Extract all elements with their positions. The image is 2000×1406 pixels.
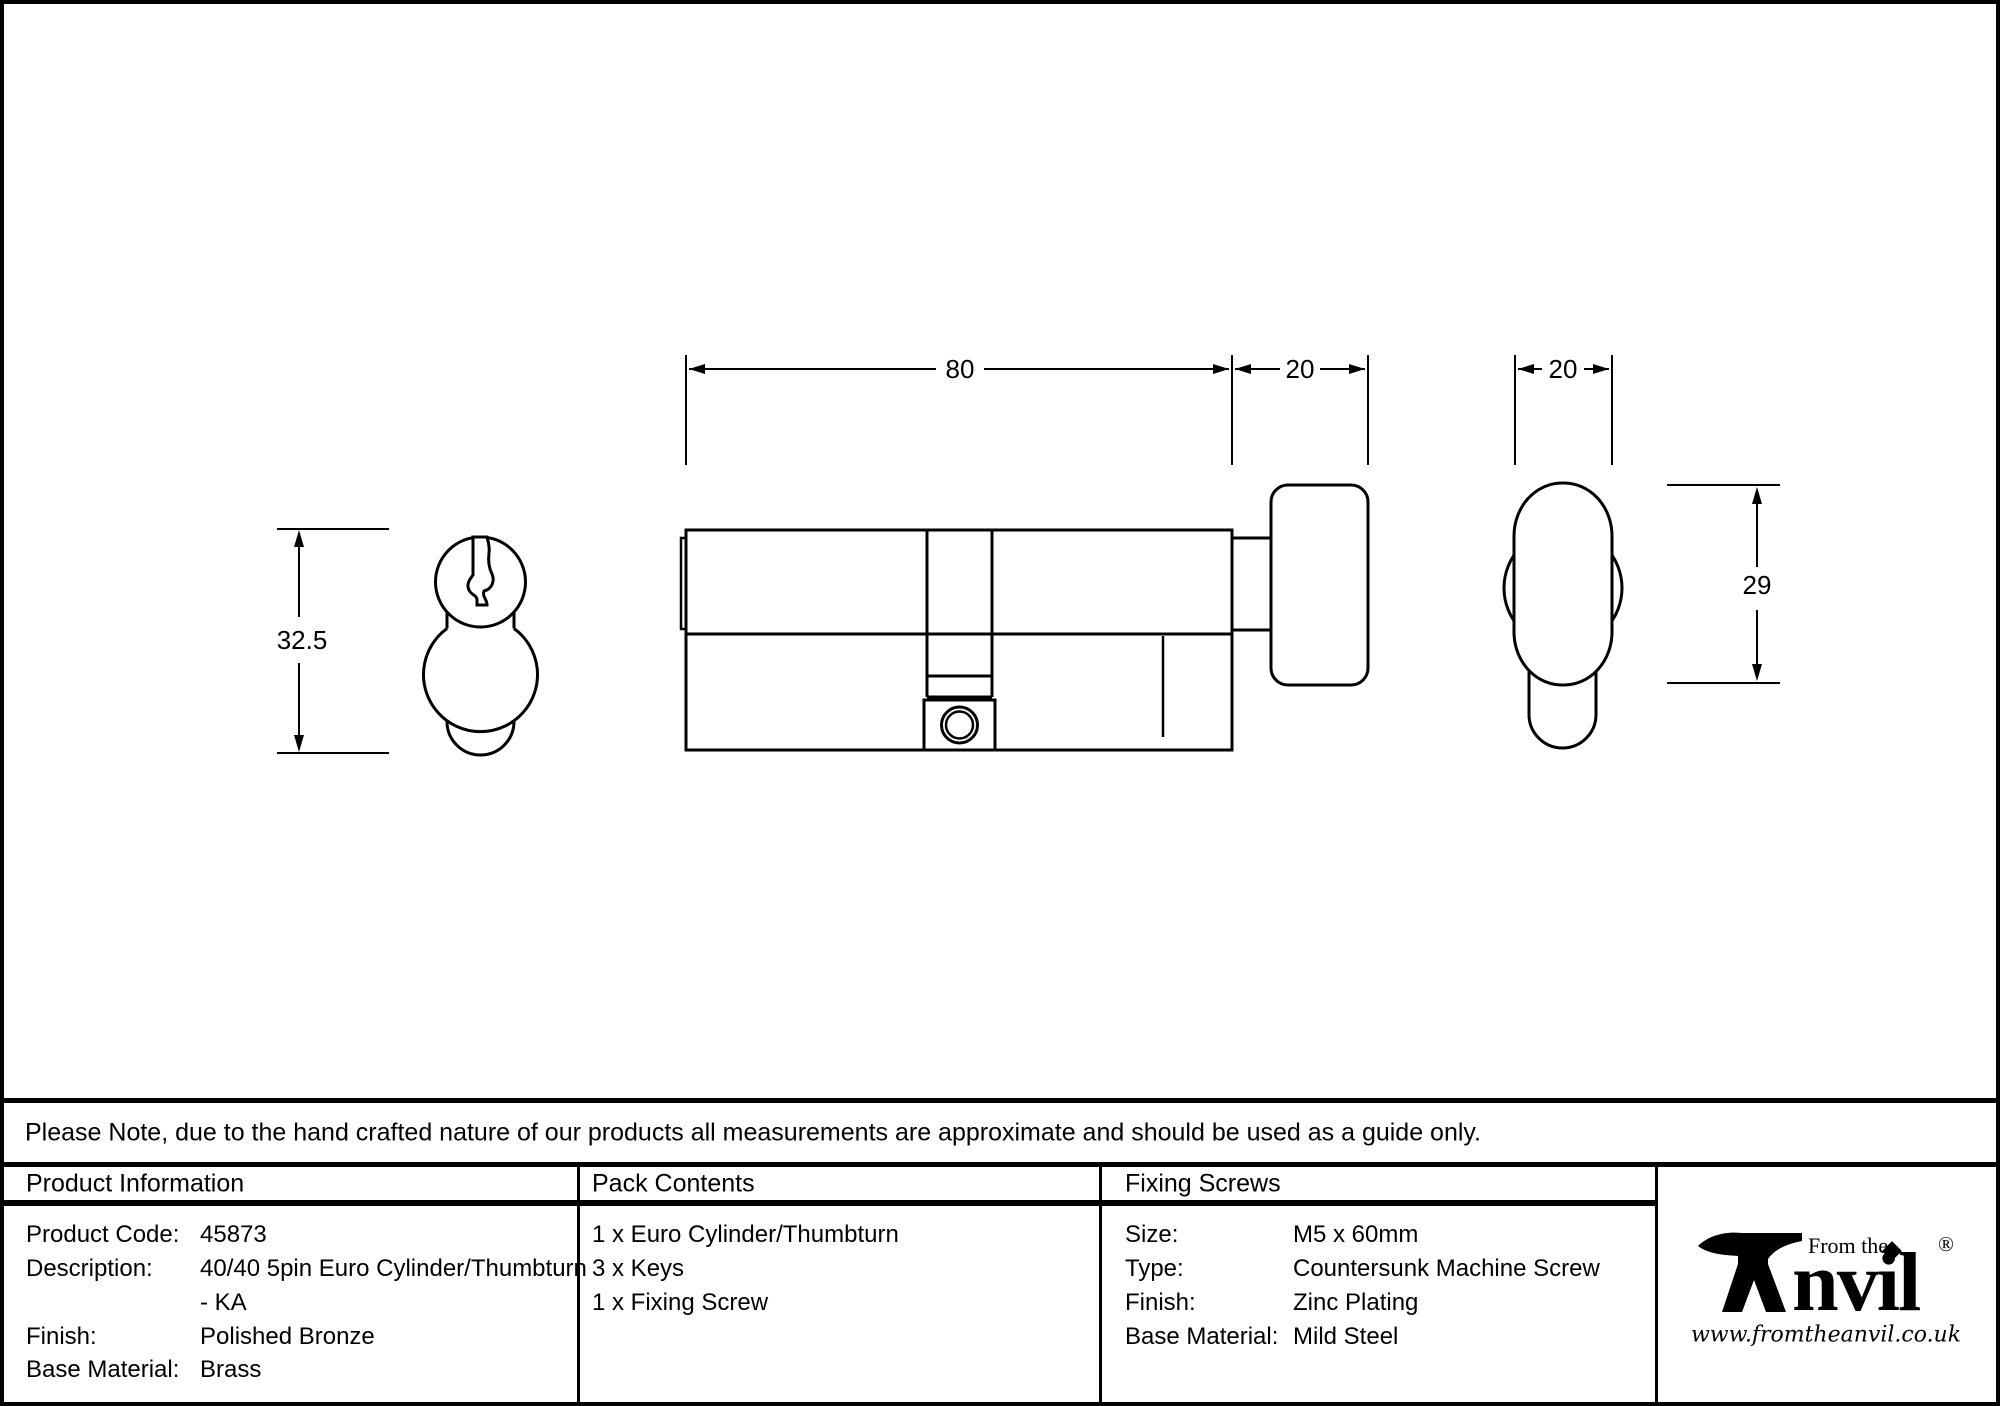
measurement-note: Please Note, due to the hand crafted nat… <box>25 1119 1481 1148</box>
screw-size-label: Size: <box>1125 1221 1178 1249</box>
screw-type-label: Type: <box>1125 1255 1184 1283</box>
description-value-line1: 40/40 5pin Euro Cylinder/Thumbturn <box>200 1255 587 1283</box>
side-view-length-dimensions <box>686 355 1368 465</box>
registered-trademark-icon: ® <box>1938 1232 1954 1257</box>
screw-size-value: M5 x 60mm <box>1293 1221 1418 1249</box>
side-view-cylinder <box>681 485 1368 750</box>
description-label: Description: <box>26 1255 153 1283</box>
header-pack-contents: Pack Contents <box>592 1170 755 1199</box>
note-bar-top-rule <box>0 1098 2000 1103</box>
anvil-icon <box>1698 1228 1802 1316</box>
logo-website-url: www.fromtheanvil.co.uk <box>1656 1323 1996 1348</box>
dim-label-20-front: 20 <box>1549 354 1578 384</box>
product-code-value: 45873 <box>200 1221 267 1249</box>
pack-item-3: 1 x Fixing Screw <box>592 1289 768 1317</box>
product-code-label: Product Code: <box>26 1221 179 1249</box>
table-divider-1 <box>577 1162 580 1406</box>
finish-value: Polished Bronze <box>200 1323 375 1351</box>
thumbturn-knob-side <box>1271 485 1368 685</box>
table-header-bottom-rule <box>0 1200 1656 1206</box>
pack-item-1: 1 x Euro Cylinder/Thumbturn <box>592 1221 899 1249</box>
front-view-outer-circle <box>424 629 538 732</box>
base-material-value: Brass <box>200 1356 261 1384</box>
pack-item-2: 3 x Keys <box>592 1255 684 1283</box>
description-value-line2: - KA <box>200 1289 247 1317</box>
front-view-euro-profile <box>424 537 538 755</box>
dim-label-20-side: 20 <box>1286 354 1315 384</box>
dim-label-29: 29 <box>1743 570 1772 600</box>
dim-label-80: 80 <box>946 354 975 384</box>
logo-anvil-word: nvil <box>1792 1241 1919 1325</box>
screw-finish-value: Zinc Plating <box>1293 1289 1418 1317</box>
thumbturn-front-view <box>1504 483 1622 748</box>
dim-label-32-5: 32.5 <box>277 625 328 655</box>
screw-finish-label: Finish: <box>1125 1289 1196 1317</box>
screw-type-value: Countersunk Machine Screw <box>1293 1255 1600 1283</box>
product-spec-sheet: 32.5 <box>0 0 2000 1406</box>
thumbturn-grip <box>1514 483 1612 685</box>
brand-logo: From the nvil ® www.fromtheanvil.co.uk <box>1656 1162 1996 1406</box>
header-product-information: Product Information <box>26 1170 244 1199</box>
screw-base-material-value: Mild Steel <box>1293 1323 1398 1351</box>
header-fixing-screws: Fixing Screws <box>1125 1170 1281 1199</box>
base-material-label: Base Material: <box>26 1356 179 1384</box>
technical-drawing: 32.5 <box>0 0 2000 1100</box>
screw-base-material-label: Base Material: <box>1125 1323 1278 1351</box>
table-divider-2 <box>1099 1162 1102 1406</box>
finish-label: Finish: <box>26 1323 97 1351</box>
